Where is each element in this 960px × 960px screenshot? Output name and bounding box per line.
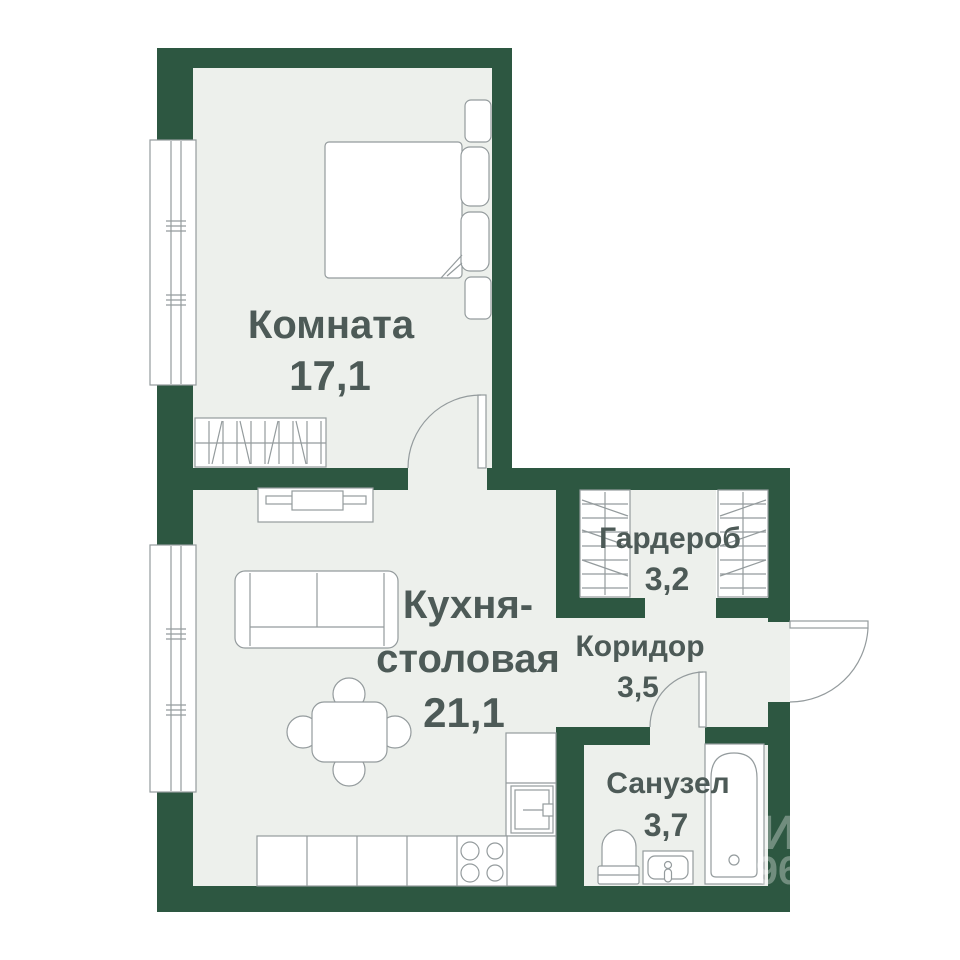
watermark-fragment-2: 96 — [756, 849, 801, 893]
wall-wardrobe-bottom-right — [716, 598, 768, 618]
wall-mid-left — [193, 468, 408, 490]
bathroom-door-leaf — [699, 672, 706, 727]
label-bathroom-name: Санузел — [606, 767, 729, 800]
bedroom-closet — [195, 418, 326, 467]
label-bedroom-area: 17,1 — [289, 352, 371, 399]
tv-console — [258, 488, 373, 522]
wall-wardrobe-bottom-left — [556, 598, 645, 618]
bathroom-sink — [643, 851, 693, 884]
floor-gap-entrance — [768, 622, 790, 702]
stove — [457, 836, 507, 886]
wall-bottom — [157, 886, 790, 912]
label-kitchen-name-line1: Кухня- — [403, 583, 533, 627]
wall-bathroom-left — [556, 727, 584, 886]
floor-gap-wardrobe — [645, 598, 716, 618]
label-corridor-name: Коридор — [575, 630, 704, 663]
floor-gap-bathroom-door — [650, 727, 705, 745]
dining-table — [312, 702, 387, 762]
label-bathroom-area: 3,7 — [644, 807, 688, 843]
label-wardrobe-area: 3,2 — [645, 561, 689, 597]
wall-mid-right — [487, 468, 790, 490]
watermark: И 96 — [756, 807, 801, 893]
wall-left-middle — [157, 382, 193, 548]
label-corridor-area: 3,5 — [617, 671, 659, 704]
wall-wardrobe-left — [556, 490, 580, 598]
bed-nightstand-top — [465, 100, 491, 142]
floorplan-svg: Комната 17,1 Кухня- столовая 21,1 Гардер… — [0, 0, 960, 960]
label-kitchen-name-line2: столовая — [376, 637, 560, 681]
toilet — [598, 830, 639, 884]
wall-left-upper — [157, 48, 193, 145]
bed-pillow-2 — [461, 212, 489, 271]
wall-bedroom-right — [492, 48, 512, 490]
label-wardrobe-name: Гардероб — [599, 522, 741, 555]
wall-right-upper — [768, 490, 790, 622]
sofa — [235, 571, 398, 648]
wall-bathroom-top-right — [705, 727, 768, 745]
entrance-door — [790, 621, 868, 702]
wall-bathroom-top-left — [584, 727, 650, 745]
entrance-door-leaf — [790, 621, 868, 628]
bed-mattress — [325, 142, 462, 278]
bedroom-window — [150, 140, 196, 385]
label-bedroom-name: Комната — [248, 303, 415, 347]
floor-kitchen — [193, 490, 556, 886]
bed-nightstand-bottom — [465, 277, 491, 319]
label-kitchen-area: 21,1 — [423, 689, 505, 736]
bedroom-door-leaf — [478, 395, 486, 468]
floor-gap-bedroom-door — [408, 468, 487, 490]
entrance-door-arc — [790, 628, 868, 702]
bed-pillow-1 — [461, 147, 489, 206]
wall-top — [157, 48, 512, 68]
floorplan-page: Комната 17,1 Кухня- столовая 21,1 Гардер… — [0, 0, 960, 960]
kitchen-window — [150, 545, 196, 792]
kitchen-sink — [511, 786, 553, 833]
